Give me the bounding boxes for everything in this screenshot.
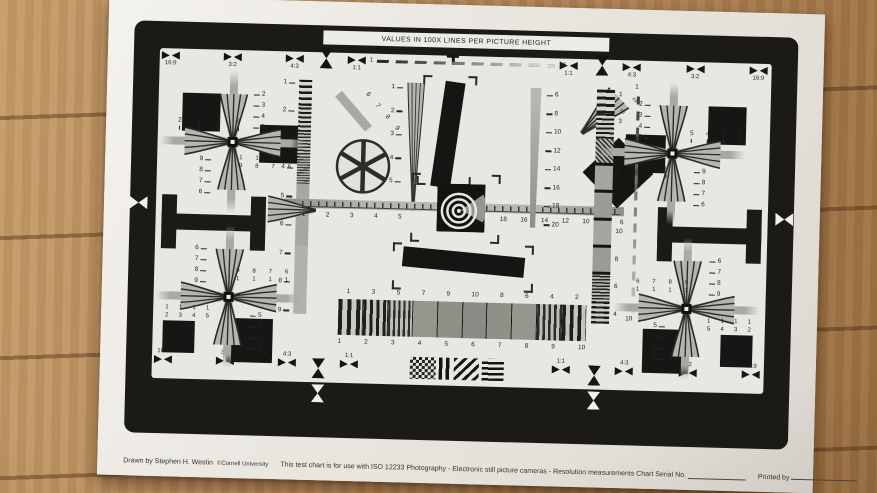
cluster-center-square	[227, 137, 237, 147]
right-wedge-scale: 68101214161820	[543, 92, 569, 229]
cluster-numbers: 5432	[690, 131, 742, 144]
cluster-numbers: 6789	[190, 245, 207, 285]
cluster-center-square	[223, 292, 233, 302]
white-hourglass-bottom-left	[311, 384, 324, 402]
printed-by-text: Printed by	[758, 474, 790, 482]
diagonal-stripes-patch	[453, 358, 479, 381]
cluster-numbers: 6789	[615, 173, 667, 180]
white-hourglass-bottom-right	[587, 391, 600, 409]
cluster-numbers: 5432	[648, 323, 665, 363]
arrow-pair-icon	[623, 63, 641, 71]
cluster-numbers: 9876	[693, 169, 710, 209]
pattern-patch	[409, 357, 504, 381]
aspect-marker: 16:9	[749, 66, 767, 81]
checkerboard-patch	[409, 357, 435, 380]
cluster-numbers: 5432	[707, 326, 751, 333]
cluster-numbers: 9876	[236, 268, 288, 275]
arrow-pair-icon	[686, 65, 704, 73]
usage-text: This test chart is for use with ISO 1223…	[280, 461, 686, 479]
cluster-numbers: 5432	[249, 313, 266, 353]
cluster-numbers: 2345	[165, 312, 209, 319]
credit-line: Drawn by Stephen H. Westin©Cornell Unive…	[123, 457, 268, 468]
aspect-marker: 1:1	[340, 353, 358, 368]
serial-number-blank	[688, 472, 746, 481]
printed-by-line: Printed by	[758, 472, 858, 484]
arrow-pair-icon	[286, 54, 304, 62]
bracket-mark	[524, 284, 533, 293]
white-hourglass-right	[775, 213, 793, 226]
arrow-pair-icon	[750, 66, 768, 74]
cluster-numbers: 1111	[165, 304, 209, 311]
usage-line: This test chart is for use with ISO 1223…	[280, 461, 746, 480]
bracket-mark	[490, 235, 499, 244]
bracket-mark	[393, 242, 402, 251]
bracket-mark	[412, 173, 421, 182]
fade-end-label: 10	[559, 63, 566, 69]
cluster-numbers: 6789	[636, 279, 688, 286]
bracket-mark	[468, 76, 477, 85]
slanted-horizontal-bar	[402, 246, 525, 278]
cluster-numbers: 9876	[194, 156, 211, 196]
credit-text: Drawn by Stephen H. Westin	[123, 457, 213, 466]
arrow-pair-icon	[340, 360, 358, 368]
bracket-mark	[492, 175, 501, 184]
corner-cluster-bottom-left: 6789 9876 1111 5432 1111 2345	[152, 220, 306, 374]
cluster-center-square	[667, 148, 677, 158]
hsweep-bottom-numbers: 12345678910	[337, 339, 585, 352]
aspect-marker: 1:1	[552, 358, 570, 373]
cluster-numbers: 1111	[707, 318, 751, 325]
copyright-text: ©Cornell University	[217, 461, 269, 468]
slanted-vertical-bar	[430, 81, 465, 189]
white-hourglass-left	[129, 196, 147, 209]
contrast-fade-line: 1 10	[370, 56, 566, 71]
aspect-marker: 1:1	[348, 56, 366, 71]
arrow-pair-icon	[162, 51, 180, 59]
corner-cluster-top-right: 2345 5432 9876 1111 6789	[596, 77, 750, 231]
arrow-pair-icon	[224, 53, 242, 61]
center-focus-target	[436, 183, 485, 232]
wedge-arm-right	[228, 279, 277, 316]
horizontal-stripes-patch	[482, 359, 504, 382]
bracket-mark	[392, 280, 401, 289]
fade-start-label: 1	[370, 58, 373, 64]
vertical-bars-patch	[438, 357, 450, 379]
chart-title: VALUES IN 100X LINES PER PICTURE HEIGHT	[323, 30, 609, 51]
bracket-mark	[423, 75, 432, 84]
chart-white-area: 16:93:24:31:1 1:14:33:216:9 16:93:24:31:…	[151, 48, 771, 394]
cluster-numbers: 1111	[615, 165, 667, 172]
mid-wedge-ruler: 123456	[384, 84, 403, 208]
corner-cluster-top-left: 2345 2345 9876 1111 9876	[156, 65, 310, 219]
wood-table-background: VALUES IN 100X LINES PER PICTURE HEIGHT …	[0, 0, 877, 493]
cluster-numbers: 2345	[178, 118, 240, 131]
arrow-pair-icon	[552, 365, 570, 373]
cluster-numbers: 6789	[709, 259, 726, 299]
test-chart-paper: VALUES IN 100X LINES PER PICTURE HEIGHT …	[97, 0, 825, 493]
corner-cluster-bottom-right: 6789 6789 1111 5432 1111 5432	[609, 232, 763, 386]
wedge-arm-left	[638, 290, 687, 327]
cluster-numbers: 1111	[239, 155, 291, 162]
printed-by-blank	[791, 473, 857, 482]
cluster-center-square	[681, 304, 691, 314]
bracket-mark	[410, 233, 419, 242]
bracket-mark	[525, 246, 534, 255]
paper-footer: Drawn by Stephen H. Westin©Cornell Unive…	[123, 455, 791, 481]
arrow-pair-icon	[348, 56, 366, 64]
chart-black-frame: VALUES IN 100X LINES PER PICTURE HEIGHT …	[124, 20, 799, 449]
cluster-numbers: 2345	[253, 92, 270, 132]
fade-dashes	[377, 59, 555, 67]
center-ruler-left-numbers: 12345	[302, 212, 402, 221]
cluster-numbers: 2345	[634, 102, 651, 142]
horizontal-frequency-sweep	[338, 299, 587, 341]
vertical-hyperbolic-wedge	[402, 82, 427, 211]
